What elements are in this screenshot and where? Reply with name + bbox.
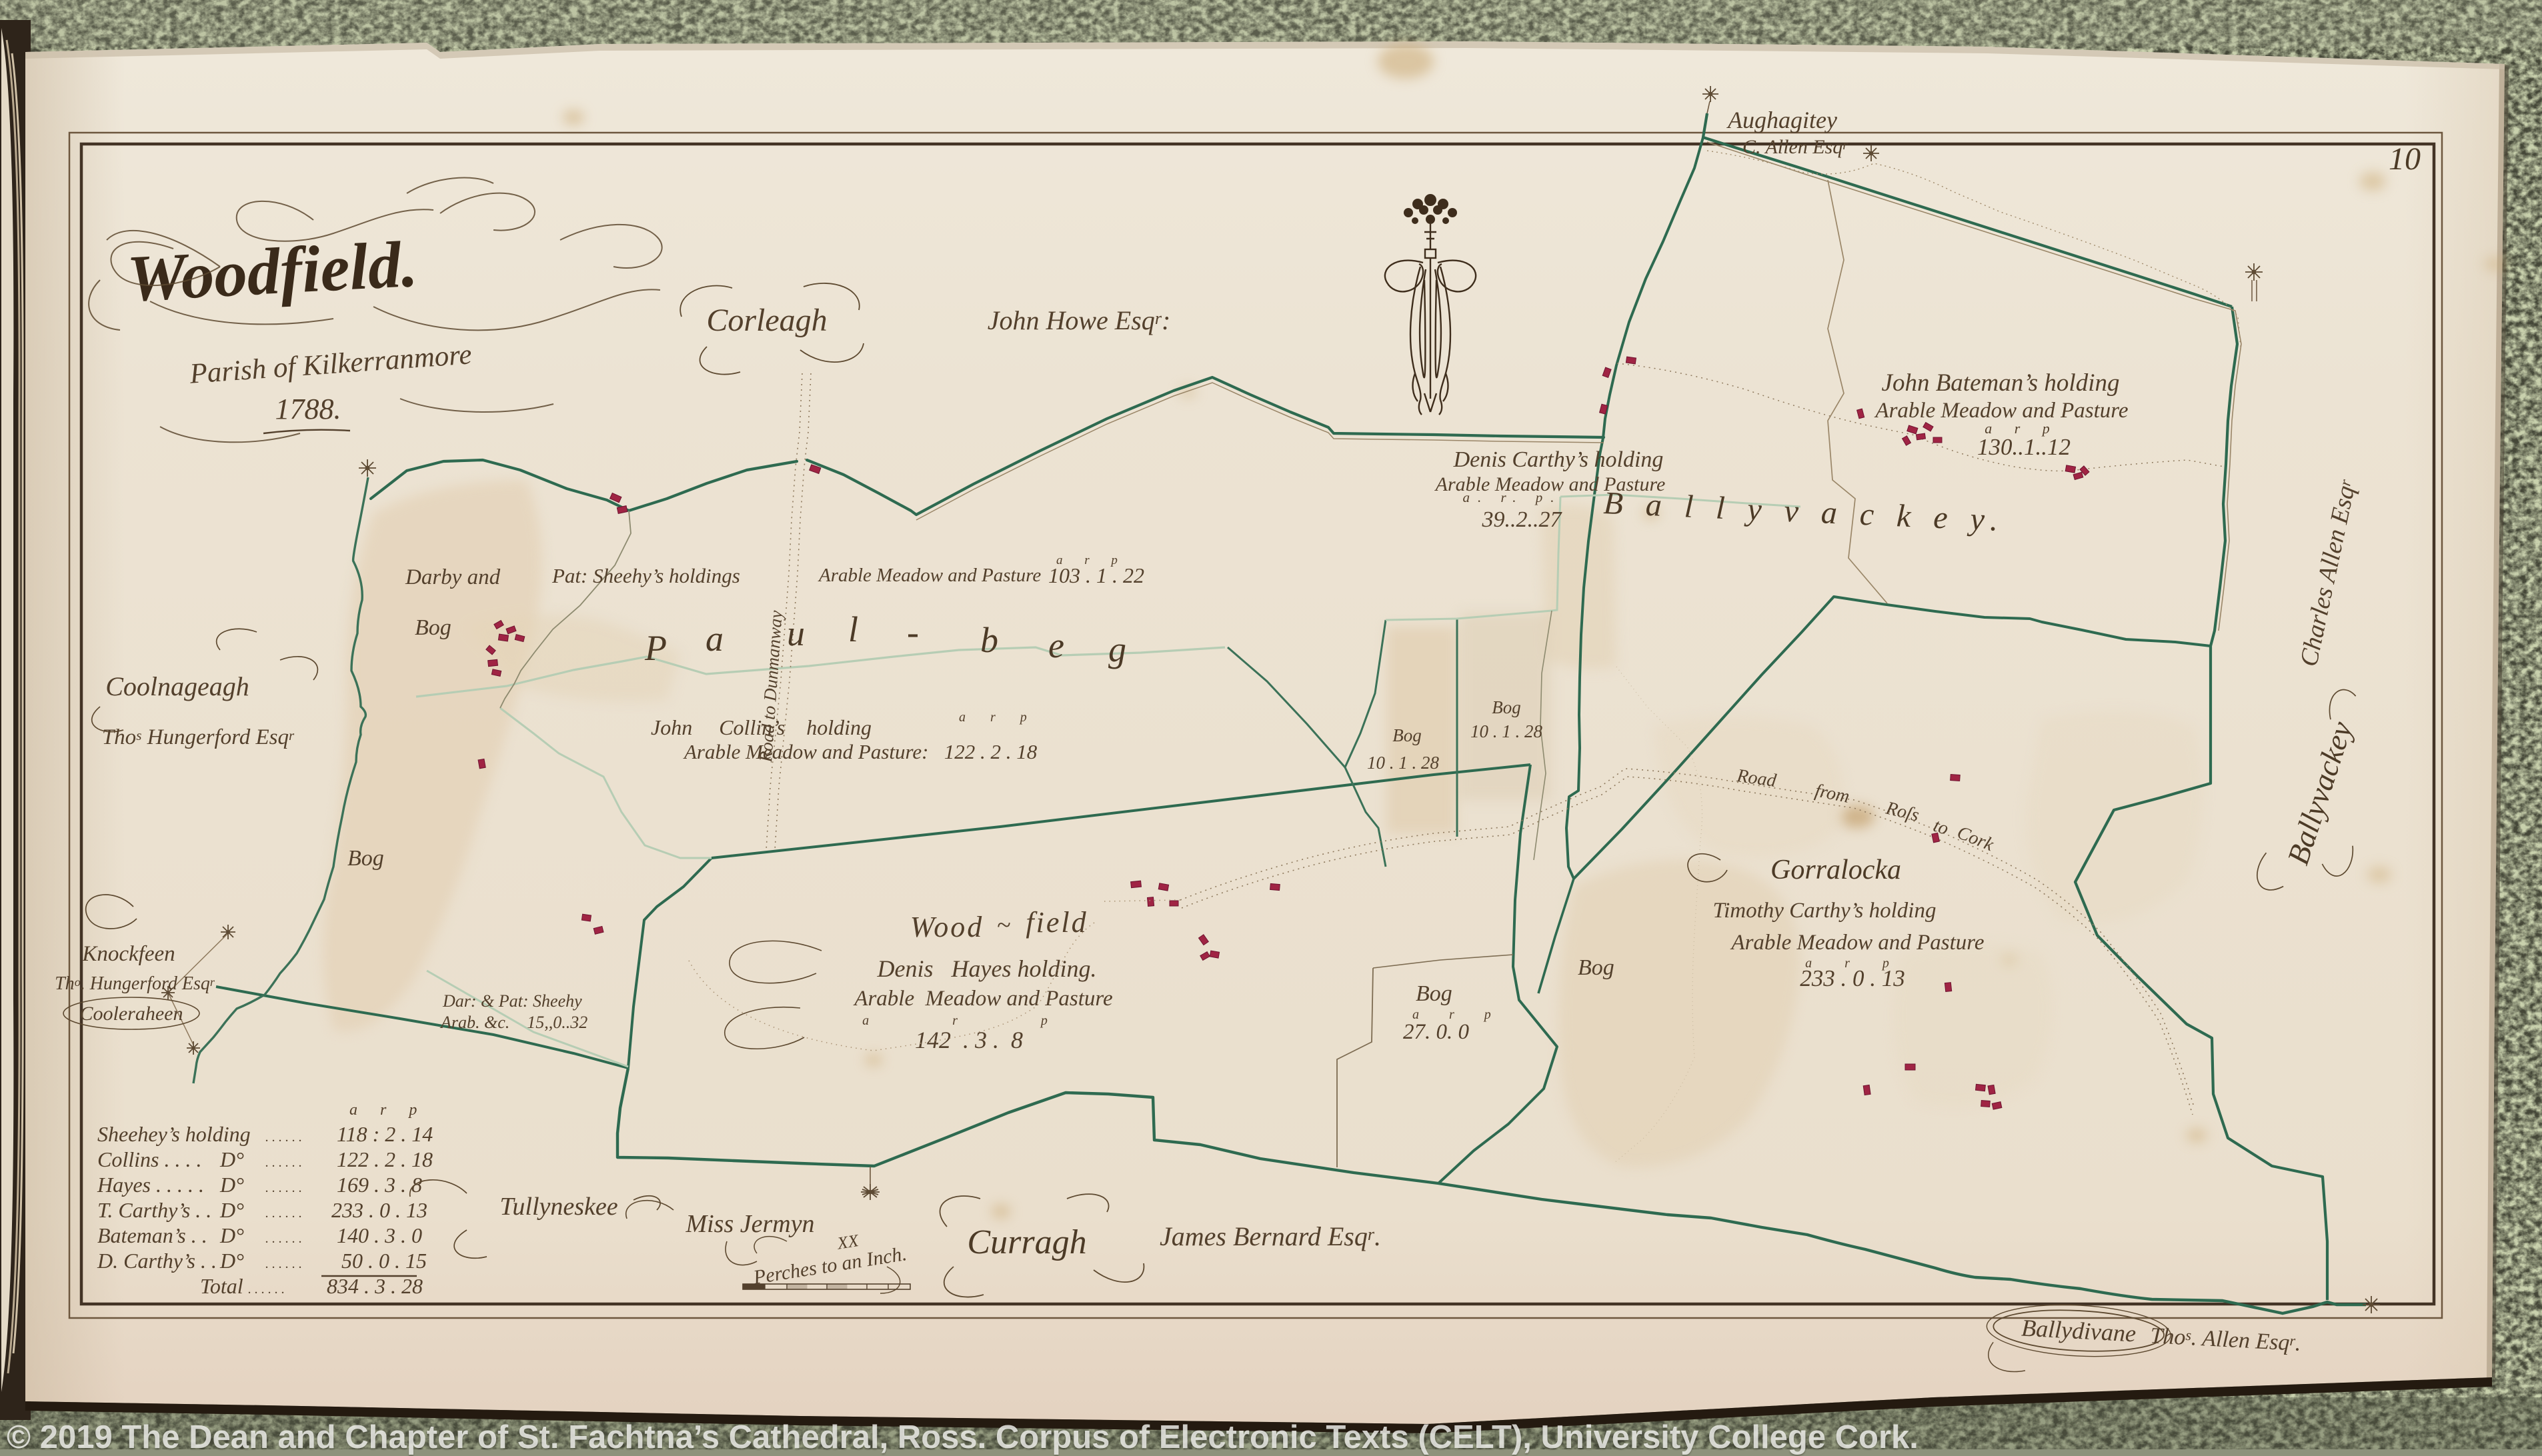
- svg-text:Total: Total: [200, 1274, 243, 1298]
- svg-text:. . . . . .: . . . . . .: [265, 1206, 302, 1221]
- svg-text:g: g: [1108, 629, 1126, 669]
- svg-text:140 . 3 . 0: 140 . 3 . 0: [337, 1223, 422, 1247]
- svg-text:-: -: [907, 612, 919, 652]
- svg-text:u: u: [787, 613, 805, 653]
- svg-text:118 : 2 . 14: 118 : 2 . 14: [337, 1122, 433, 1146]
- svg-text:John Bateman’s holding: John Bateman’s holding: [1882, 369, 2120, 397]
- svg-text:D°: D°: [219, 1147, 244, 1171]
- svg-text:Bog: Bog: [347, 846, 384, 871]
- svg-text:103 . 1 . 22: 103 . 1 . 22: [1048, 563, 1144, 587]
- svg-text:D°: D°: [219, 1249, 244, 1273]
- svg-text:Ballyvackey: Ballyvackey: [2281, 717, 2359, 869]
- svg-text:Arable Meadow and Pasture: 1: Arable Meadow and Pasture: 122 . 2 . 18: [683, 740, 1038, 763]
- svg-text:a: a: [706, 619, 724, 659]
- svg-text:Darby and: Darby and: [405, 565, 501, 589]
- svg-text:. . . . . .: . . . . . .: [265, 1155, 302, 1170]
- svg-text:. . . . . .: . . . . . .: [265, 1231, 302, 1246]
- svg-text:Bog: Bog: [1416, 981, 1452, 1006]
- svg-text:Thos. Allen Esqr.: Thos. Allen Esqr.: [2150, 1323, 2302, 1356]
- svg-text:Bateman’s . .: Bateman’s . .: [97, 1223, 207, 1247]
- svg-text:Thos Hungerford Esqr: Thos Hungerford Esqr: [102, 725, 295, 749]
- svg-text:Arable Meadow and Pasture: Arable Meadow and Pasture: [1874, 399, 2128, 423]
- svg-text:e: e: [1048, 625, 1064, 665]
- svg-text:233 . 0 . 13: 233 . 0 . 13: [331, 1198, 427, 1222]
- svg-text:Timothy Carthy’s holding: Timothy Carthy’s holding: [1713, 899, 1937, 923]
- svg-text:142 . 3 . 8: 142 . 3 . 8: [915, 1027, 1023, 1053]
- svg-text:Curragh: Curragh: [967, 1223, 1086, 1261]
- svg-text:~: ~: [997, 911, 1011, 939]
- svg-text:a r p: a r p: [959, 710, 1038, 725]
- svg-text:Denis Carthy’s holding: Denis Carthy’s holding: [1453, 447, 1664, 472]
- svg-text:Arable Meadow and Pasture: Arable Meadow and Pasture: [818, 565, 1041, 586]
- svg-text:. . . . . .: . . . . . .: [265, 1181, 302, 1195]
- svg-text:Collins . . . .: Collins . . . .: [97, 1147, 201, 1171]
- svg-text:James Bernard Esqr.: James Bernard Esqr.: [1160, 1221, 1381, 1251]
- svg-text:Denis Hayes holding.: Denis Hayes holding.: [877, 955, 1097, 982]
- svg-text:Knockfeen: Knockfeen: [81, 942, 175, 966]
- svg-text:Cooleraheen: Cooleraheen: [80, 1003, 183, 1025]
- svg-text:Dar: & Pat: Sheehy: Dar: & Pat: Sheehy: [442, 991, 582, 1011]
- svg-text:Roſs: Roſs: [1883, 797, 1921, 825]
- svg-text:39..2..27: 39..2..27: [1482, 507, 1563, 532]
- svg-text:P: P: [644, 628, 667, 668]
- svg-text:to: to: [1931, 815, 1951, 839]
- svg-text:field: field: [1026, 906, 1088, 939]
- svg-text:Arab. &c. 15,,0..32: Arab. &c. 15,,0..32: [439, 1013, 587, 1032]
- svg-text:Bog: Bog: [1492, 697, 1521, 717]
- svg-text:Wood: Wood: [910, 911, 984, 943]
- svg-text:Gorralocka: Gorralocka: [1770, 855, 1901, 885]
- svg-text:27. 0. 0: 27. 0. 0: [1403, 1020, 1470, 1044]
- svg-text:a r p: a r p: [862, 1013, 1088, 1028]
- svg-text:Ballydivane: Ballydivane: [2021, 1315, 2137, 1347]
- svg-text:Bog: Bog: [1578, 955, 1614, 980]
- svg-text:Arable Meadow and Pasture: Arable Meadow and Pasture: [853, 987, 1112, 1011]
- svg-text:Perches to an Inch.: Perches to an Inch.: [752, 1243, 908, 1289]
- svg-text:50 . 0 . 15: 50 . 0 . 15: [341, 1249, 427, 1273]
- svg-text:. . . . . .: . . . . . .: [265, 1130, 302, 1145]
- svg-text:Aughagitey: Aughagitey: [1726, 107, 1837, 133]
- svg-text:Charles Allen Esqr: Charles Allen Esqr: [2295, 477, 2362, 669]
- svg-text:169 . 3 . 8: 169 . 3 . 8: [337, 1173, 422, 1197]
- svg-text:130..1..12: 130..1..12: [1977, 434, 2071, 460]
- svg-text:D°: D°: [219, 1198, 244, 1222]
- svg-text:. . . . . .: . . . . . .: [248, 1282, 285, 1297]
- svg-text:C. Allen Esqr: C. Allen Esqr: [1742, 136, 1848, 158]
- svg-text:b: b: [980, 620, 998, 660]
- svg-text:D. Carthy’s . .: D. Carthy’s . .: [97, 1249, 217, 1273]
- svg-text:l: l: [848, 609, 858, 649]
- svg-text:T. Carthy’s . .: T. Carthy’s . .: [97, 1198, 211, 1222]
- svg-text:John Howe Esqr:: John Howe Esqr:: [988, 305, 1171, 335]
- svg-text:Tullyneskee: Tullyneskee: [499, 1193, 617, 1221]
- svg-text:Sheehey’s holding: Sheehey’s holding: [97, 1122, 251, 1146]
- svg-text:10: 10: [2389, 141, 2421, 177]
- svg-text:Bog: Bog: [1392, 725, 1422, 745]
- svg-text:Hayes . . . . .: Hayes . . . . .: [97, 1173, 204, 1197]
- svg-text:233 . 0 . 13: 233 . 0 . 13: [1800, 965, 1905, 991]
- svg-text:122 . 2 . 18: 122 . 2 . 18: [337, 1147, 433, 1171]
- svg-text:John Collin’s holding: John Collin’s holding: [651, 715, 872, 739]
- svg-text:Corleagh: Corleagh: [706, 303, 827, 338]
- svg-text:Tho. Hungerford Esqr: Tho. Hungerford Esqr: [55, 973, 215, 994]
- svg-text:Bog: Bog: [415, 615, 451, 640]
- svg-text:Arable Meadow and Pasture: Arable Meadow and Pasture: [1730, 931, 1984, 955]
- svg-text:. . . . . .: . . . . . .: [265, 1257, 302, 1271]
- svg-text:B a l l y v a c k e y.: B a l l y v a c k e y.: [1603, 485, 2007, 538]
- svg-text:1788.: 1788.: [275, 393, 341, 425]
- svg-text:834 . 3 . 28: 834 . 3 . 28: [327, 1274, 423, 1298]
- svg-text:Pat: Sheehy’s holdings: Pat: Sheehy’s holdings: [551, 564, 740, 587]
- svg-text:Miss Jermyn: Miss Jermyn: [685, 1210, 814, 1238]
- svg-text:Parish of Kilkerranmore: Parish of Kilkerranmore: [188, 339, 473, 390]
- svg-text:a. r. p.: a. r. p.: [1462, 489, 1562, 505]
- svg-text:D°: D°: [219, 1173, 244, 1197]
- svg-text:a r p: a r p: [349, 1101, 426, 1119]
- svg-text:Coolnageagh: Coolnageagh: [105, 671, 249, 701]
- svg-text:10 . 1 . 28: 10 . 1 . 28: [1470, 721, 1543, 741]
- svg-text:D°: D°: [219, 1223, 244, 1247]
- svg-text:10 . 1 . 28: 10 . 1 . 28: [1367, 753, 1440, 773]
- svg-text:Cork: Cork: [1954, 822, 1997, 855]
